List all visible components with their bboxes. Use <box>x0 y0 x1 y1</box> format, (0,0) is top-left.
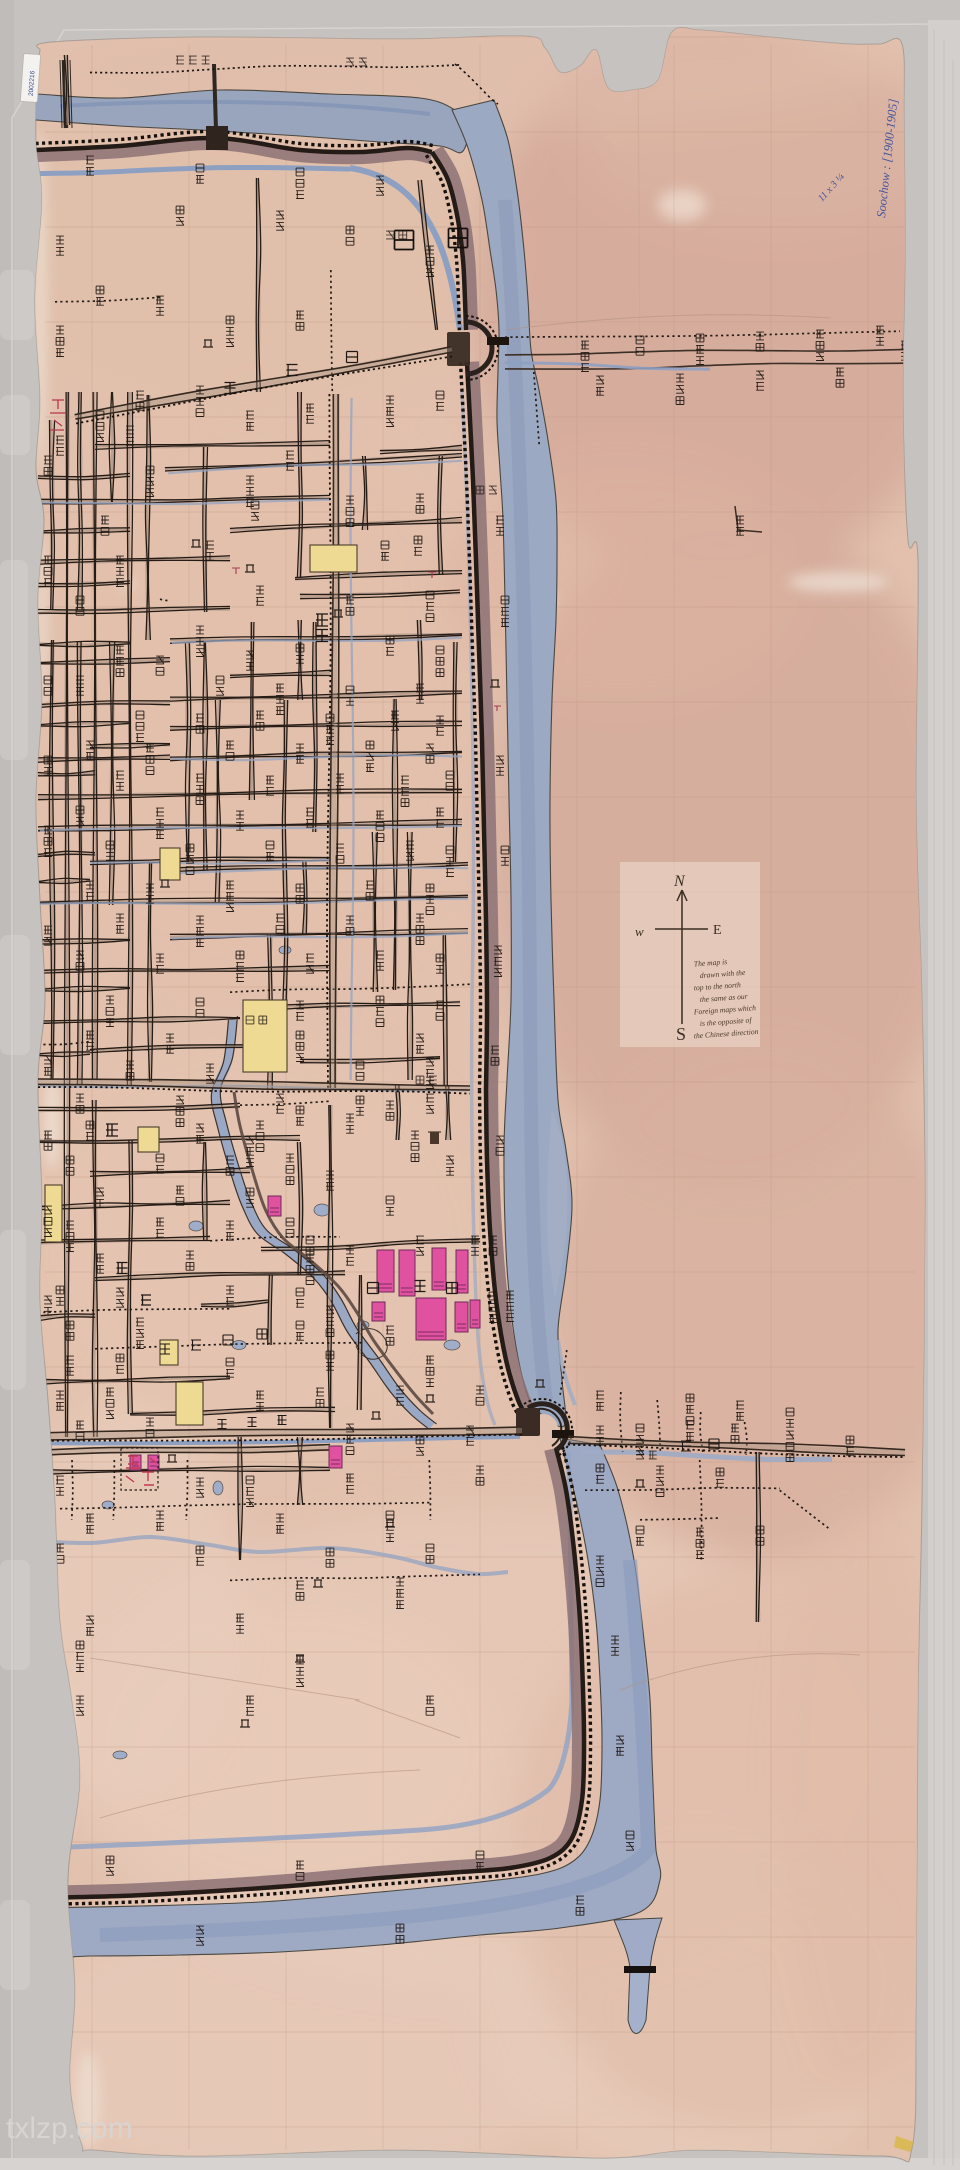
svg-text:S: S <box>676 1024 686 1044</box>
svg-text:w: w <box>635 924 644 939</box>
svg-text:txlzp.com: txlzp.com <box>6 2112 133 2145</box>
svg-text:N: N <box>673 873 686 890</box>
svg-text:E: E <box>713 923 722 938</box>
